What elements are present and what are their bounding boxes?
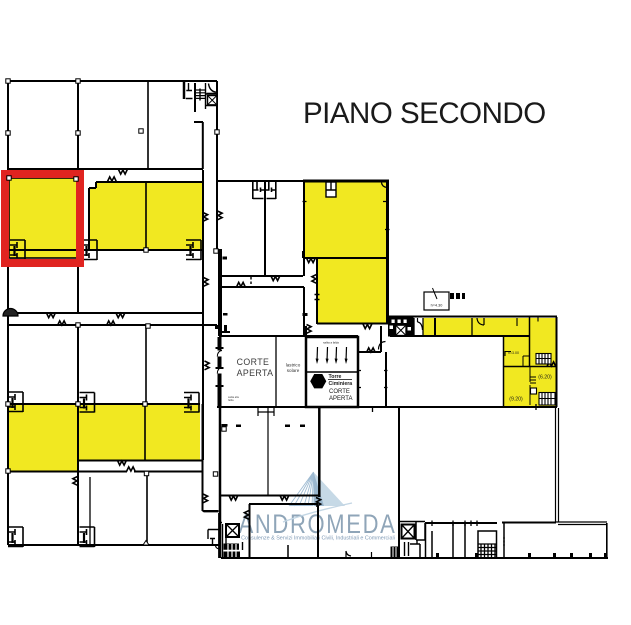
svg-text:Consulenze & Servizi Immobilia: Consulenze & Servizi Immobiliari Civili,… <box>241 536 395 542</box>
svg-text:PIANO SECONDO: PIANO SECONDO <box>303 97 546 130</box>
svg-text:(6.20): (6.20) <box>538 375 552 381</box>
svg-text:CORTE: CORTE <box>329 389 350 395</box>
svg-text:h=3.00: h=3.00 <box>508 351 519 355</box>
svg-text:APERTA: APERTA <box>237 368 274 378</box>
svg-text:solare: solare <box>287 368 300 373</box>
svg-text:h=4.30: h=4.30 <box>431 304 443 308</box>
svg-text:APERTA: APERTA <box>329 396 352 402</box>
svg-text:CORTE: CORTE <box>237 357 270 367</box>
svg-text:(9.20): (9.20) <box>509 397 523 403</box>
svg-text:falda: falda <box>228 398 234 402</box>
svg-text:lastrico: lastrico <box>286 363 301 368</box>
svg-text:Ciminiera: Ciminiera <box>329 381 353 387</box>
svg-text:salita a falda: salita a falda <box>323 341 339 345</box>
